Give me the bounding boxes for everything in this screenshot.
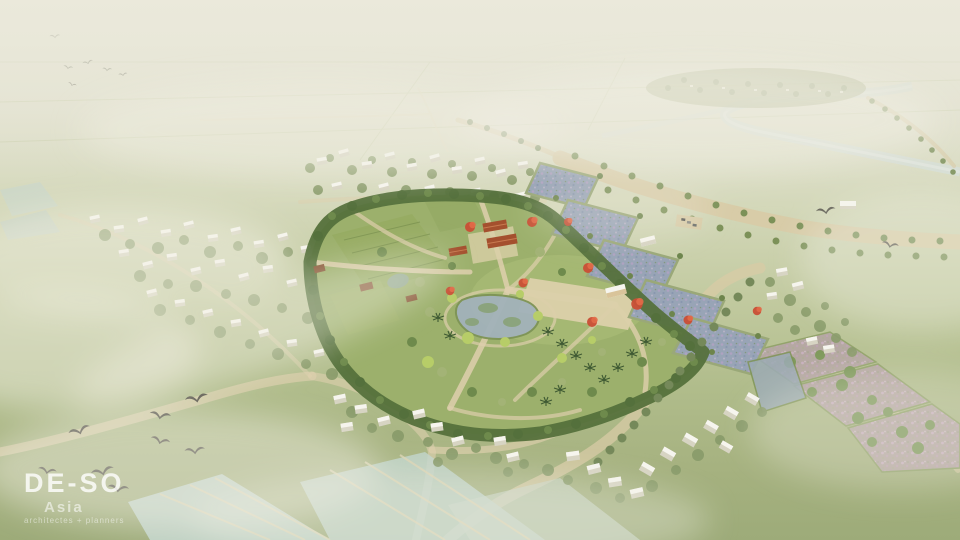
rendering-scene	[0, 0, 960, 540]
brand-region: Asia	[44, 500, 125, 515]
watermark: DE-SO Asia architectes + planners	[24, 470, 125, 525]
aerial-rendering: DE-SO Asia architectes + planners	[0, 0, 960, 540]
brand-name: DE-SO	[24, 470, 125, 497]
brand-tagline: architectes + planners	[24, 517, 125, 525]
